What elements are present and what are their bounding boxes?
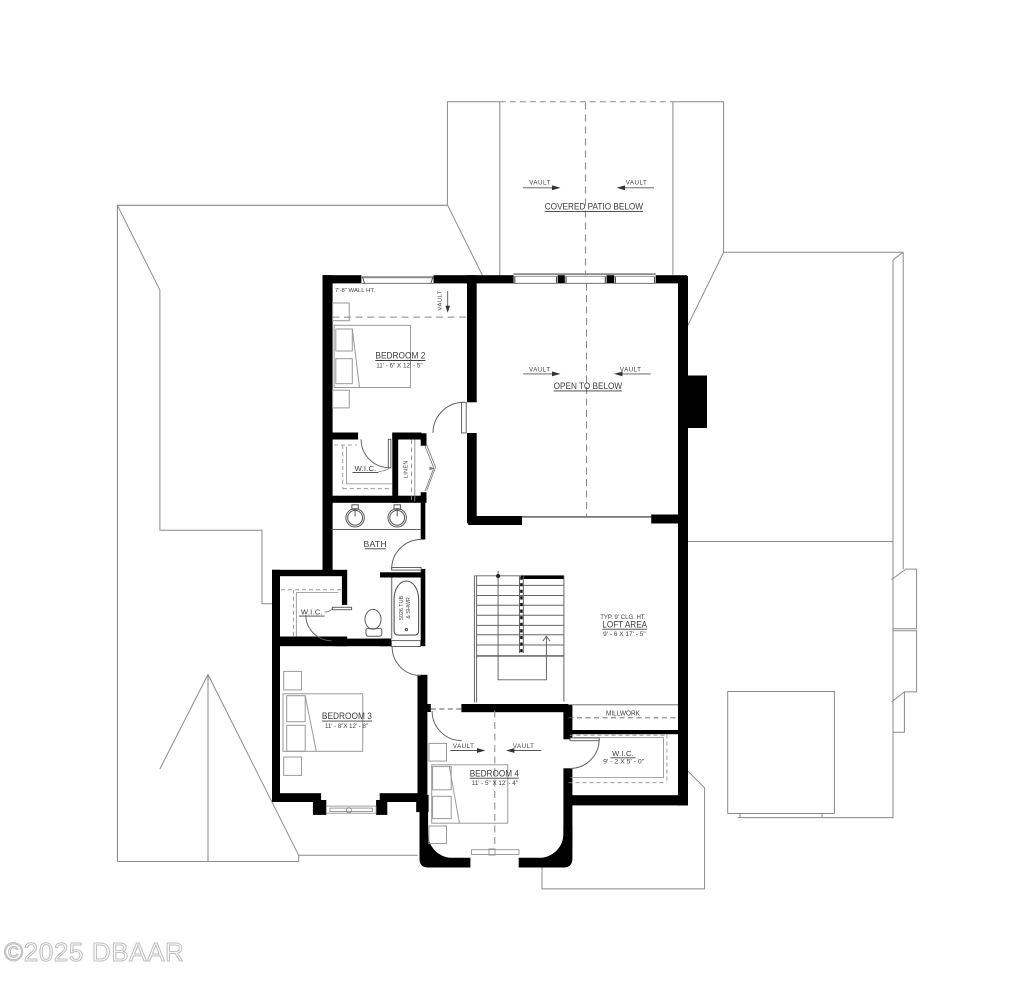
- svg-text:BEDROOM 4: BEDROOM 4: [470, 767, 519, 778]
- svg-text:& SHWR: & SHWR: [406, 597, 412, 619]
- svg-text:W.I.C.: W.I.C.: [301, 607, 323, 616]
- svg-text:VAULT: VAULT: [529, 180, 551, 187]
- svg-text:BEDROOM 3: BEDROOM 3: [322, 710, 372, 721]
- svg-text:11' - 6" X 12' - 5": 11' - 6" X 12' - 5": [376, 363, 423, 370]
- svg-text:VAULT: VAULT: [529, 367, 551, 374]
- svg-text:BEDROOM 2: BEDROOM 2: [375, 350, 425, 361]
- svg-text:VAULT: VAULT: [626, 180, 648, 187]
- svg-text:VAULT: VAULT: [438, 290, 444, 310]
- svg-text:W.I.C.: W.I.C.: [355, 464, 377, 473]
- svg-text:LINEN: LINEN: [403, 460, 409, 478]
- svg-text:OPEN TO BELOW: OPEN TO BELOW: [554, 380, 623, 391]
- svg-text:9' - 2 X 5' - 0": 9' - 2 X 5' - 0": [603, 759, 644, 766]
- svg-text:©2025 DBAAR: ©2025 DBAAR: [4, 937, 184, 967]
- svg-text:9' - 6 X 17' - 5": 9' - 6 X 17' - 5": [603, 631, 646, 638]
- svg-text:VAULT: VAULT: [513, 743, 535, 750]
- svg-text:W.I.C.: W.I.C.: [612, 749, 634, 758]
- svg-text:11' - 8"X 12' - 8": 11' - 8"X 12' - 8": [325, 723, 369, 730]
- svg-text:11' - 5" X 12' - 4": 11' - 5" X 12' - 4": [472, 780, 519, 787]
- svg-text:COVERED PATIO BELOW: COVERED PATIO BELOW: [545, 201, 644, 211]
- svg-text:MILLWORK: MILLWORK: [606, 708, 640, 717]
- svg-text:LOFT AREA: LOFT AREA: [602, 619, 647, 629]
- svg-text:7'-8" WALL HT.: 7'-8" WALL HT.: [335, 288, 375, 294]
- svg-text:BATH: BATH: [363, 539, 386, 549]
- svg-text:VAULT: VAULT: [453, 743, 475, 750]
- svg-text:VAULT: VAULT: [620, 367, 642, 374]
- svg-text:5026 TUB: 5026 TUB: [399, 596, 405, 621]
